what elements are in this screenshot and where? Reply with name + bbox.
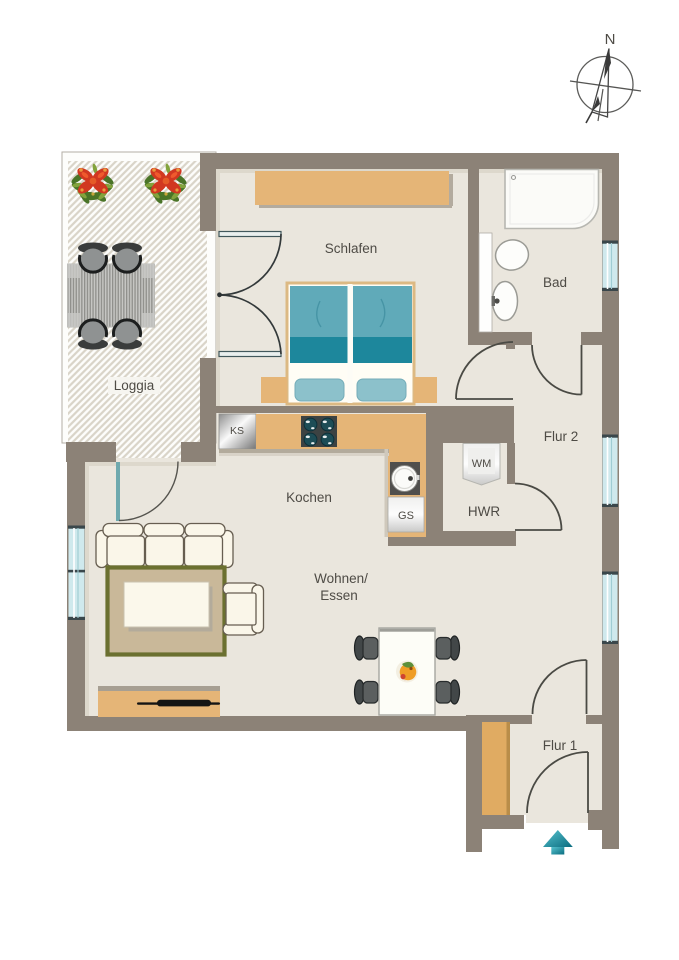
svg-text:Schlafen: Schlafen: [325, 241, 378, 256]
svg-text:HWR: HWR: [468, 504, 500, 519]
svg-text:N: N: [605, 31, 616, 48]
svg-text:Flur 1: Flur 1: [543, 738, 578, 753]
svg-text:KS: KS: [230, 425, 244, 437]
svg-text:Loggia: Loggia: [114, 378, 155, 393]
svg-text:Bad: Bad: [543, 275, 567, 290]
svg-text:Kochen: Kochen: [286, 490, 332, 505]
svg-text:Wohnen/: Wohnen/: [314, 571, 368, 586]
svg-text:GS: GS: [398, 510, 414, 522]
svg-text:Flur 2: Flur 2: [544, 429, 579, 444]
svg-text:Essen: Essen: [320, 588, 358, 603]
svg-text:WM: WM: [472, 458, 492, 470]
